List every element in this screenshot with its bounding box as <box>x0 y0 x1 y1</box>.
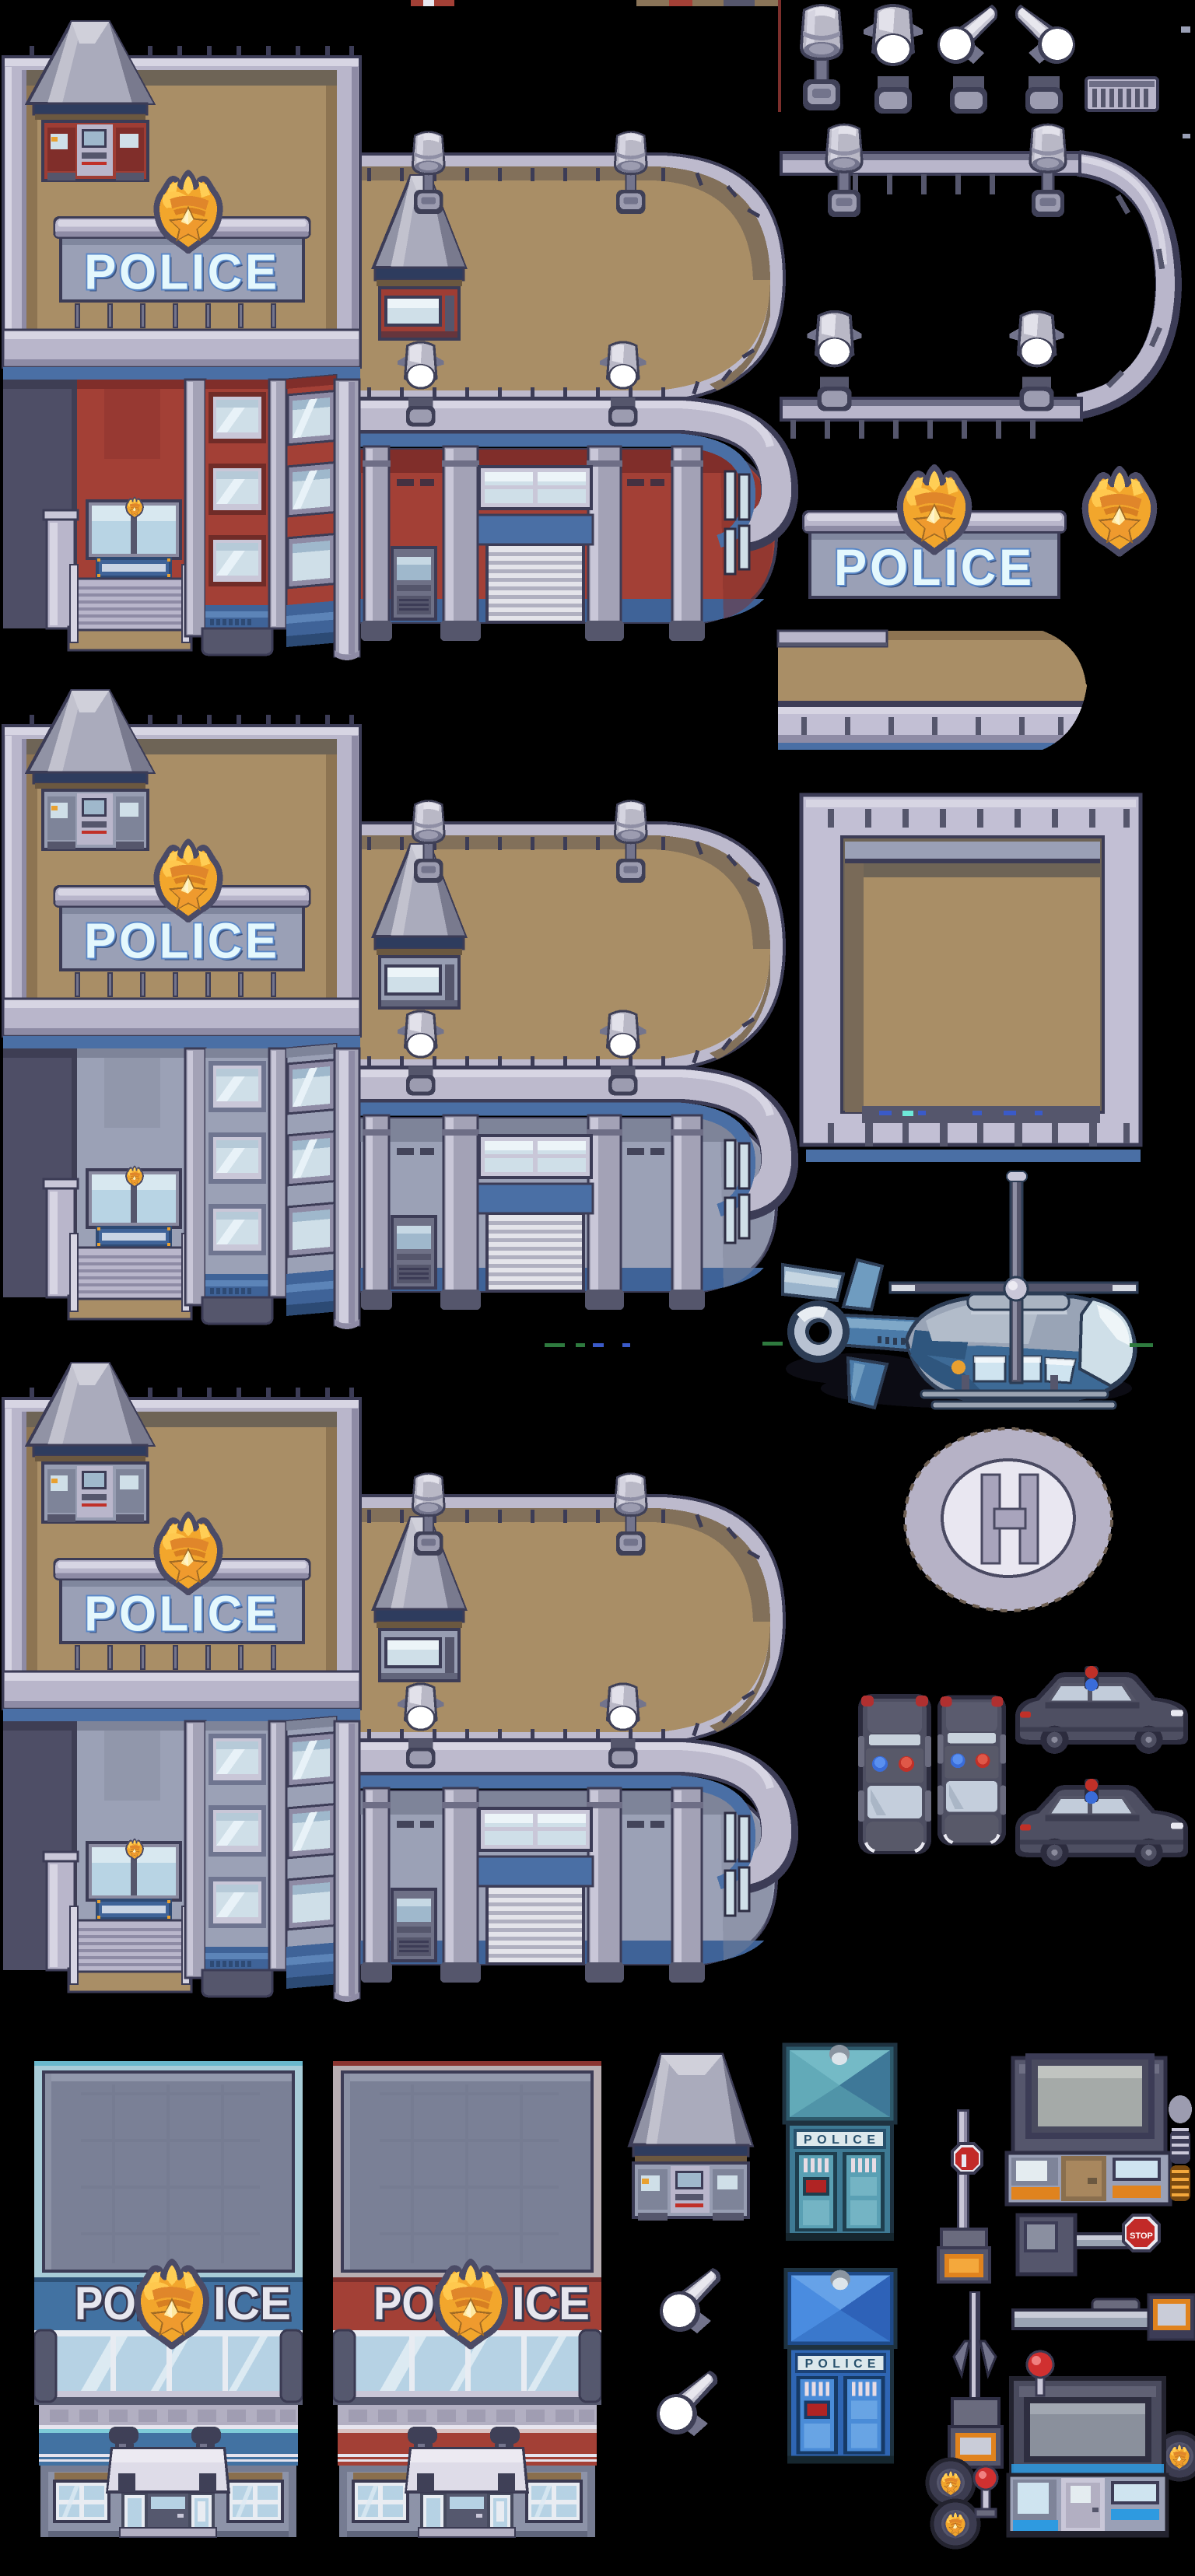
svg-text:STOP: STOP <box>1130 2231 1153 2241</box>
